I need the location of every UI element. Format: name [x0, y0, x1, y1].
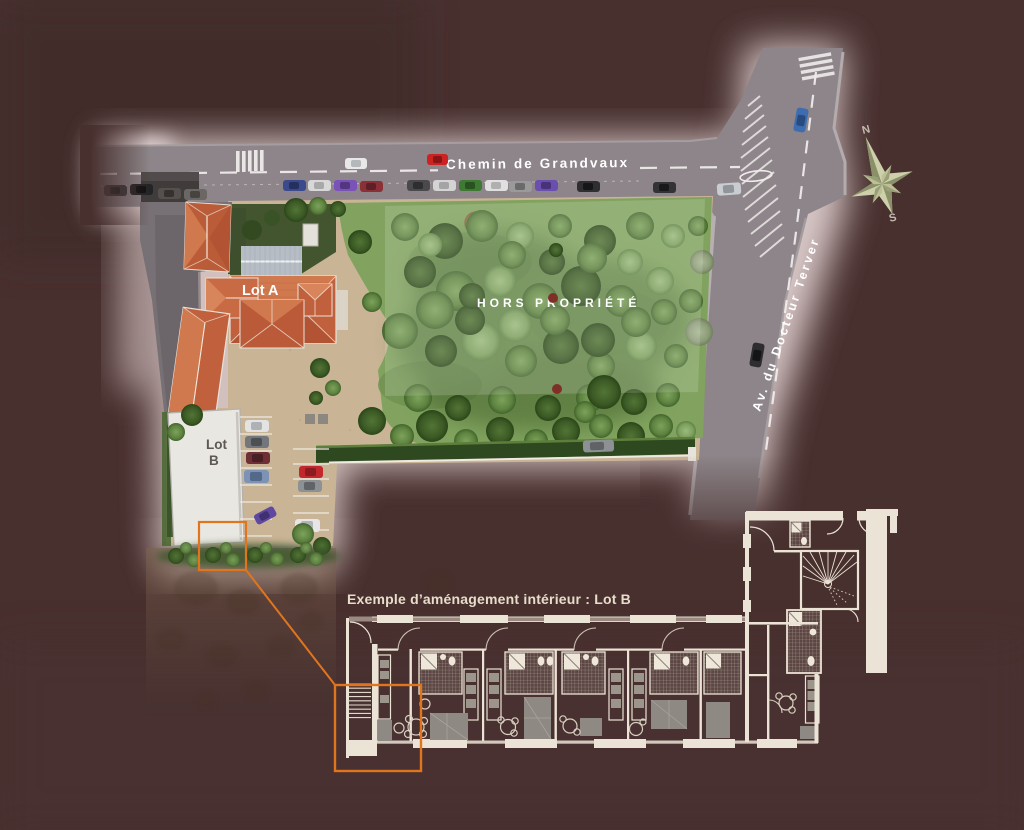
svg-text:Lot: Lot: [206, 437, 227, 452]
svg-text:B: B: [209, 453, 219, 468]
svg-text:Lot A: Lot A: [242, 283, 279, 299]
svg-text:HORS PROPRIÉTÉ: HORS PROPRIÉTÉ: [477, 295, 640, 310]
svg-text:Exemple d’aménagement intérieu: Exemple d’aménagement intérieur : Lot B: [347, 591, 631, 607]
svg-text:Chemin de Grandvaux: Chemin de Grandvaux: [446, 155, 629, 172]
